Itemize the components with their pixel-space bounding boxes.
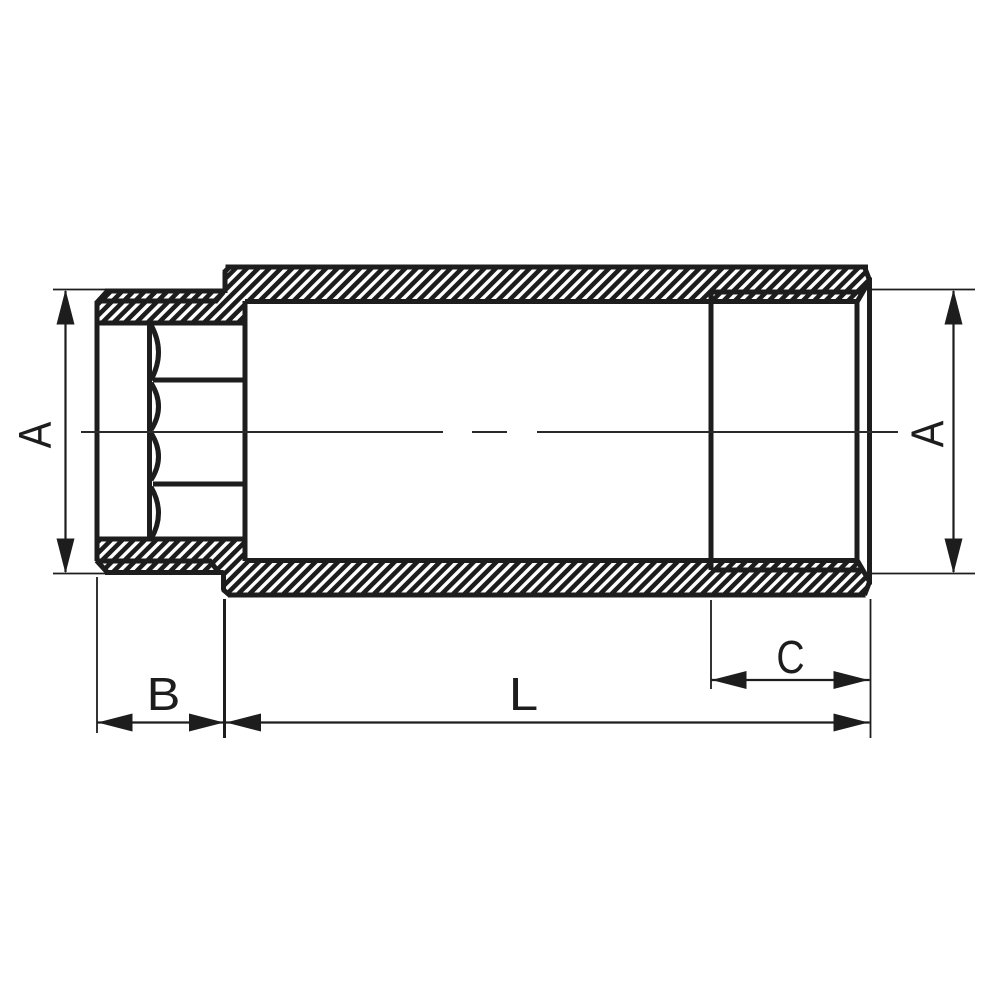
svg-text:A: A [903, 420, 954, 447]
svg-text:B: B [147, 669, 181, 720]
svg-text:C: C [776, 632, 804, 684]
svg-text:L: L [509, 668, 538, 720]
svg-text:A: A [10, 421, 61, 448]
